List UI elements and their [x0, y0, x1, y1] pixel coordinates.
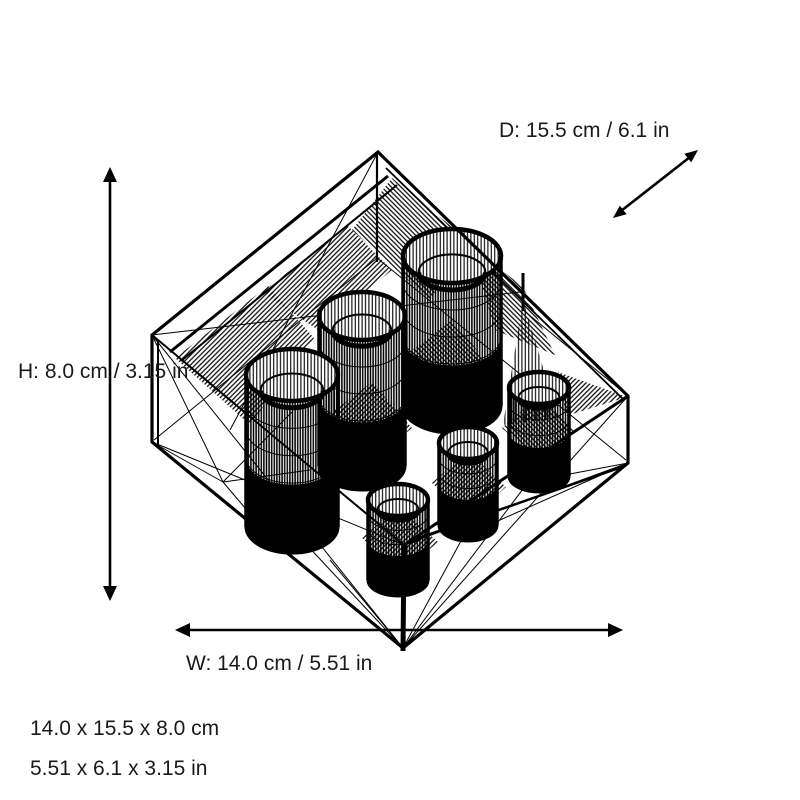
height-dimension-label: H: 8.0 cm / 3.15 in [18, 360, 188, 383]
size-summary-in: 5.51 x 6.1 x 3.15 in [30, 757, 207, 780]
cylinder-mesh-6 [368, 484, 428, 596]
cylinder-mesh-3 [246, 349, 338, 553]
cylinder-mesh-4 [509, 372, 569, 492]
height-arrow [103, 167, 117, 601]
depth-dimension-label: D: 15.5 cm / 6.1 in [499, 119, 669, 142]
width-arrow [175, 623, 623, 637]
wireframe-render [0, 0, 800, 800]
cylinder-mesh-5 [439, 427, 497, 541]
size-summary-cm: 14.0 x 15.5 x 8.0 cm [30, 717, 219, 740]
depth-arrow [613, 150, 698, 218]
dimension-diagram: D: 15.5 cm / 6.1 in H: 8.0 cm / 3.15 in … [0, 0, 800, 800]
width-dimension-label: W: 14.0 cm / 5.51 in [186, 652, 372, 675]
